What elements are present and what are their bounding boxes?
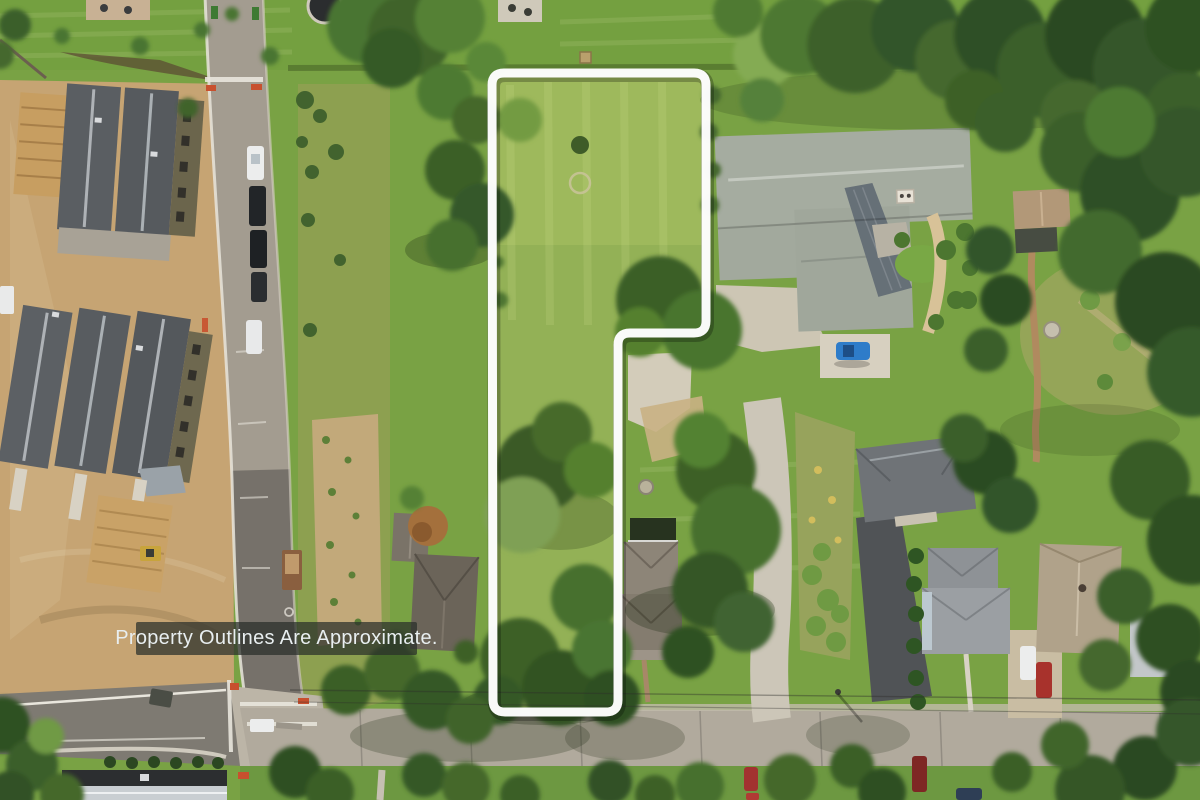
playground-pad [498, 0, 542, 22]
pickup-truck [250, 719, 274, 732]
fire-pit [639, 480, 653, 494]
chimney [897, 190, 914, 204]
dark-blue-car [956, 788, 982, 800]
aerial-photo-canvas [0, 0, 1200, 800]
garden-strip [795, 412, 855, 660]
disclaimer-banner: Property Outlines Are Approximate. [136, 622, 417, 655]
aerial-photo: Property Outlines Are Approximate. [0, 0, 1200, 800]
crosswalk-line [205, 77, 263, 82]
red-car [744, 767, 758, 791]
maroon-car [912, 756, 927, 792]
blue-car [834, 342, 870, 368]
disclaimer-text: Property Outlines Are Approximate. [115, 627, 438, 650]
